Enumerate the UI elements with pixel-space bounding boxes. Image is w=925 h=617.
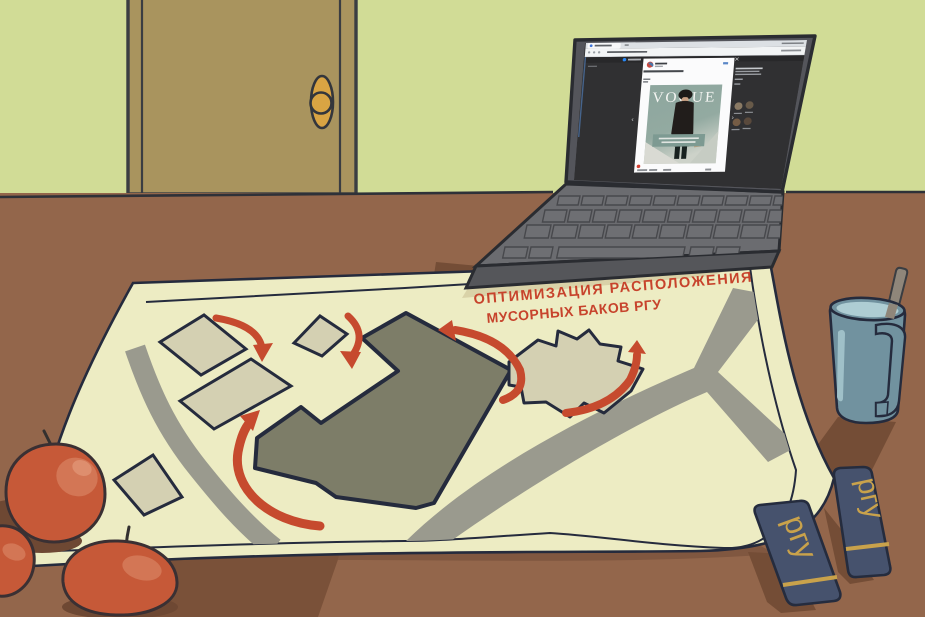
svg-text:✕: ✕: [734, 57, 740, 63]
